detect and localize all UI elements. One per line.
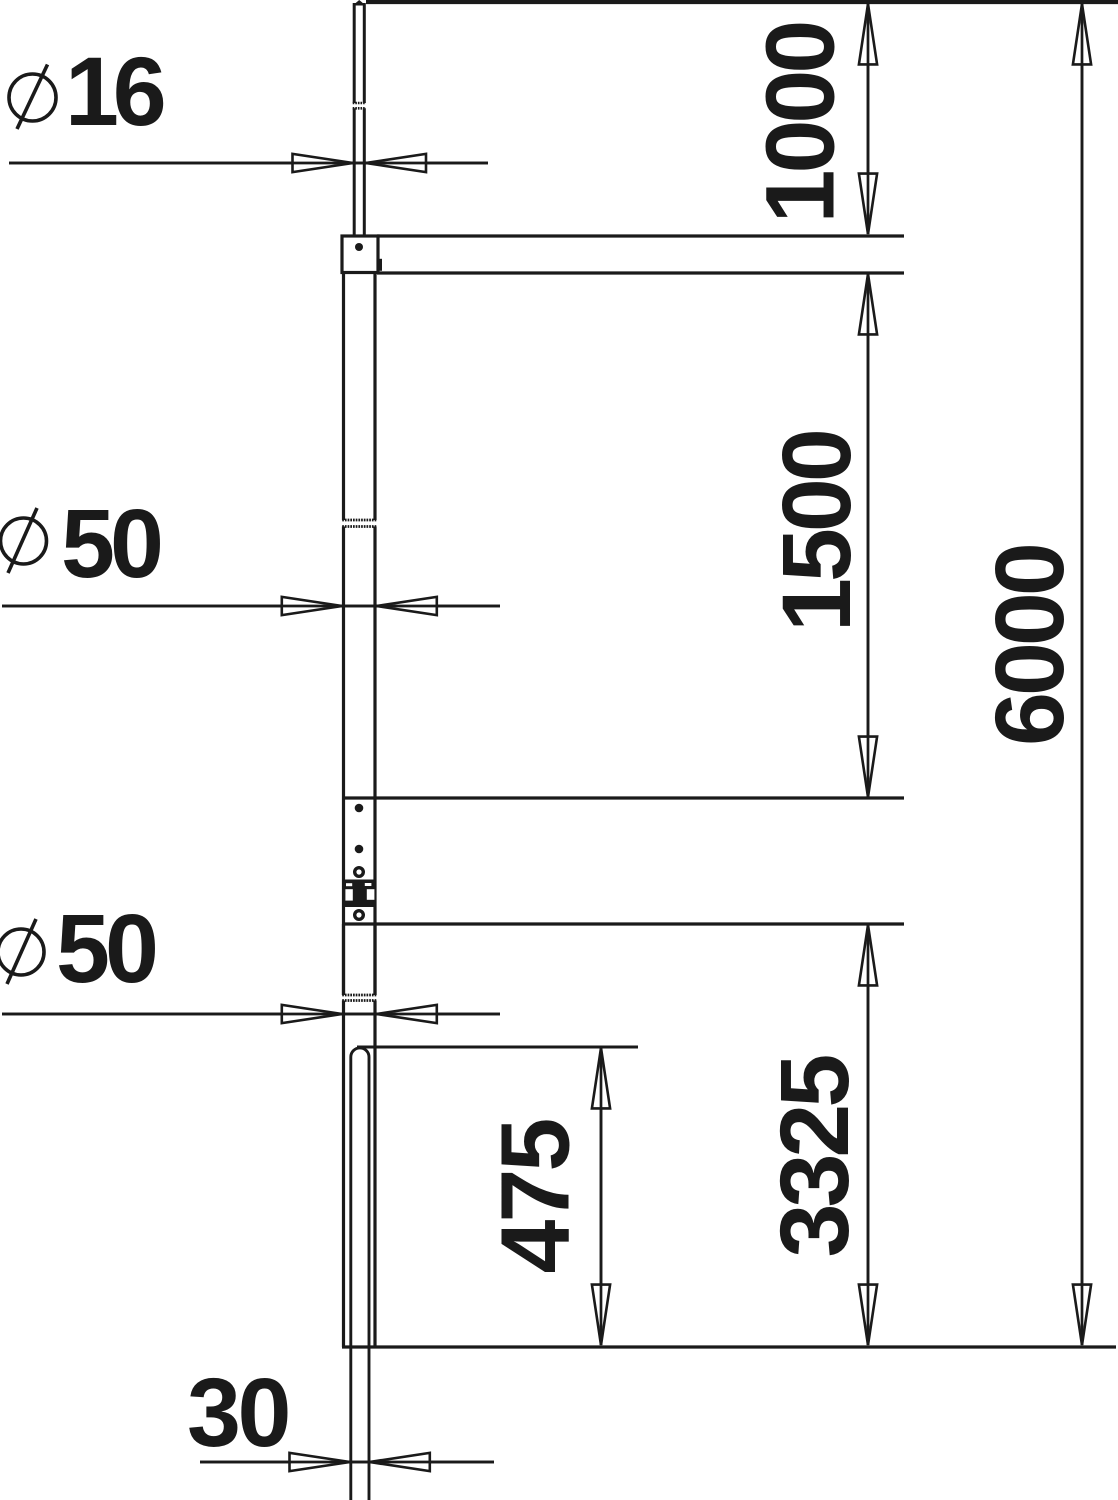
svg-text:475: 475 xyxy=(481,1120,590,1274)
svg-text:50: 50 xyxy=(56,894,155,1003)
svg-text:1000: 1000 xyxy=(746,24,855,224)
svg-text:50: 50 xyxy=(61,489,160,598)
svg-text:6000: 6000 xyxy=(975,546,1084,746)
svg-text:16: 16 xyxy=(65,37,164,146)
svg-text:30: 30 xyxy=(187,1358,288,1467)
svg-text:1500: 1500 xyxy=(762,432,871,632)
svg-text:3325: 3325 xyxy=(760,1056,869,1258)
